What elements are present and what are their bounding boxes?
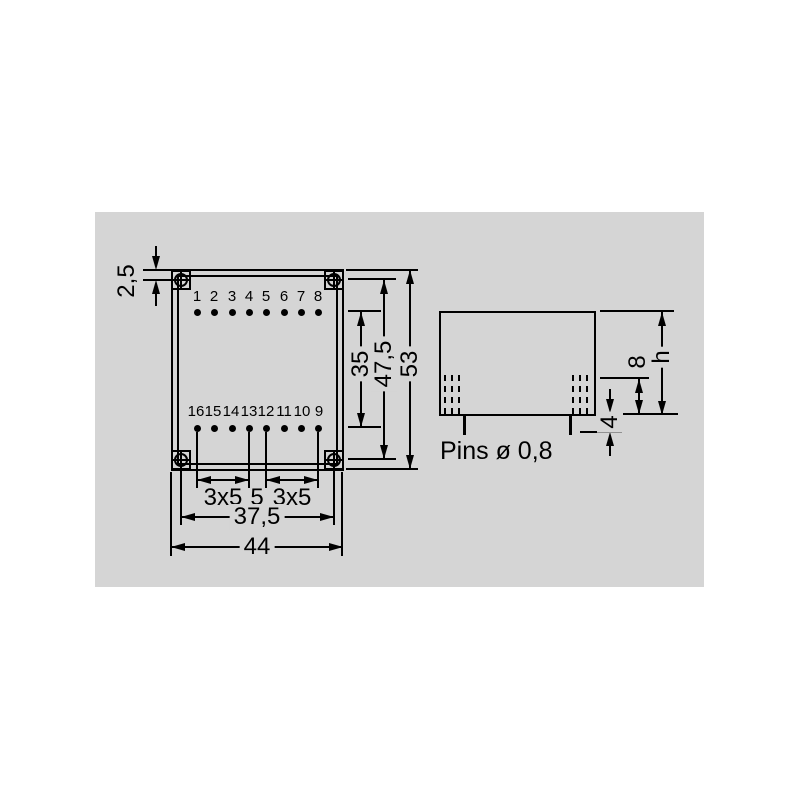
- pin-dot: [229, 309, 236, 316]
- arrowhead: [197, 476, 211, 484]
- pin-dot: [211, 309, 218, 316]
- pin-dot: [211, 425, 218, 432]
- arrowhead: [304, 476, 318, 484]
- pins-diameter-note: Pins ø 0,8: [440, 438, 553, 465]
- pin-label-10: 10: [294, 404, 311, 420]
- pin-dot: [298, 309, 305, 316]
- pin-dot: [194, 309, 201, 316]
- arrowhead: [329, 543, 343, 551]
- pin-label-13: 13: [241, 404, 258, 420]
- arrowhead: [357, 312, 365, 326]
- pin-label-16: 16: [188, 404, 205, 420]
- pin-dot: [263, 309, 270, 316]
- arrowhead: [357, 413, 365, 427]
- pin-lead: [569, 415, 572, 435]
- arrowhead: [171, 543, 185, 551]
- arrowhead: [235, 476, 249, 484]
- pin-lead: [463, 415, 466, 435]
- hidden-pin-line: [458, 375, 460, 414]
- pin-dot: [315, 309, 322, 316]
- arrowhead: [658, 401, 666, 415]
- extension-line: [348, 278, 396, 280]
- pin-label-9: 9: [315, 404, 323, 420]
- arrowhead: [266, 476, 280, 484]
- arrowhead: [181, 513, 195, 521]
- extension-line: [348, 458, 396, 460]
- pin-label-7: 7: [297, 289, 305, 305]
- pin-dot: [281, 309, 288, 316]
- dim-label-hole-span-vertical: 47,5: [371, 337, 397, 392]
- pin-label-2: 2: [210, 289, 218, 305]
- arrowhead: [380, 280, 388, 294]
- dim-label-body-width: 44: [240, 534, 275, 560]
- pin-dot: [281, 425, 288, 432]
- dim-label-hole-edge-offset: 2,5: [114, 264, 140, 297]
- dim-label-case-height: h: [649, 346, 675, 367]
- hidden-pin-line: [579, 375, 581, 414]
- hidden-pin-line: [586, 375, 588, 414]
- pin-dot: [263, 425, 270, 432]
- dimension-line-2-5: [155, 292, 157, 306]
- dim-label-pin-seat-depth: 8: [625, 355, 651, 368]
- hidden-pin-line: [451, 375, 453, 414]
- pin-label-11: 11: [276, 404, 292, 420]
- arrowhead: [320, 513, 334, 521]
- extension-line: [143, 269, 177, 271]
- crosshair-line: [333, 270, 335, 290]
- pin-dot: [298, 425, 305, 432]
- pin-label-15: 15: [205, 404, 222, 420]
- dim-label-body-height: 53: [397, 347, 423, 382]
- pin-dot: [229, 425, 236, 432]
- dim-label-hole-span-horizontal: 37,5: [230, 504, 285, 530]
- arrowhead: [152, 256, 160, 270]
- hidden-pin-line: [572, 375, 574, 414]
- pin-label-5: 5: [262, 289, 270, 305]
- arrowhead: [635, 379, 643, 393]
- hidden-pin-line: [444, 375, 446, 414]
- pin-dot: [246, 309, 253, 316]
- pin-label-3: 3: [228, 289, 236, 305]
- pin-label-14: 14: [223, 404, 240, 420]
- pin-label-6: 6: [280, 289, 288, 305]
- pin-dot: [315, 425, 322, 432]
- arrowhead: [635, 400, 643, 414]
- arrowhead: [658, 312, 666, 326]
- dimension-line-4: [609, 444, 611, 456]
- arrowhead: [406, 455, 414, 469]
- arrowhead: [406, 270, 414, 284]
- pin-label-12: 12: [258, 404, 275, 420]
- pin-label-1: 1: [193, 289, 201, 305]
- dim-label-pin-protrusion: 4: [597, 411, 623, 432]
- pin-label-4: 4: [245, 289, 253, 305]
- page: 1 2 3 4 5 6 7 8 16 15 14 13 12 11 10 9 2…: [0, 0, 800, 800]
- pin-label-8: 8: [314, 289, 322, 305]
- pin-dot: [246, 425, 253, 432]
- pin-dot: [194, 425, 201, 432]
- arrowhead: [380, 445, 388, 459]
- extension-line: [143, 279, 181, 281]
